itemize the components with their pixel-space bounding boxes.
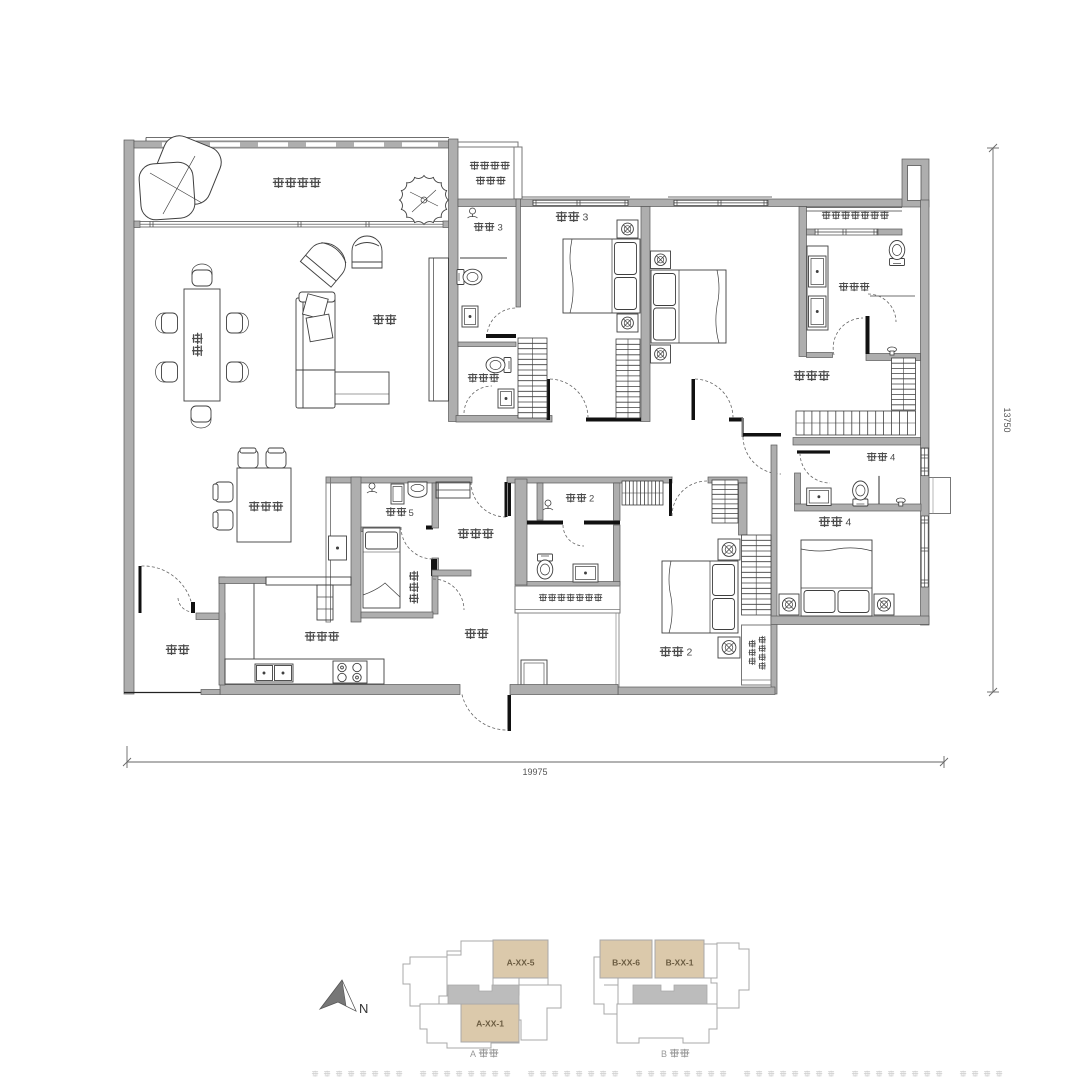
svg-text:2: 2 (589, 494, 594, 505)
svg-text:4: 4 (846, 517, 852, 529)
svg-text:2: 2 (687, 647, 693, 659)
svg-text:B-XX-6: B-XX-6 (612, 958, 640, 968)
svg-text:B: B (661, 1049, 667, 1059)
svg-text:19975: 19975 (522, 767, 547, 777)
svg-text:3: 3 (498, 223, 503, 234)
svg-text:A: A (470, 1049, 476, 1059)
svg-text:B-XX-1: B-XX-1 (666, 958, 694, 968)
svg-text:A-XX-1: A-XX-1 (476, 1019, 504, 1029)
svg-text:13750: 13750 (1002, 407, 1012, 432)
svg-text:4: 4 (890, 453, 895, 464)
svg-text:A-XX-5: A-XX-5 (507, 958, 535, 968)
svg-text:N: N (359, 1001, 368, 1016)
svg-text:3: 3 (583, 212, 589, 224)
svg-text:5: 5 (409, 508, 414, 519)
